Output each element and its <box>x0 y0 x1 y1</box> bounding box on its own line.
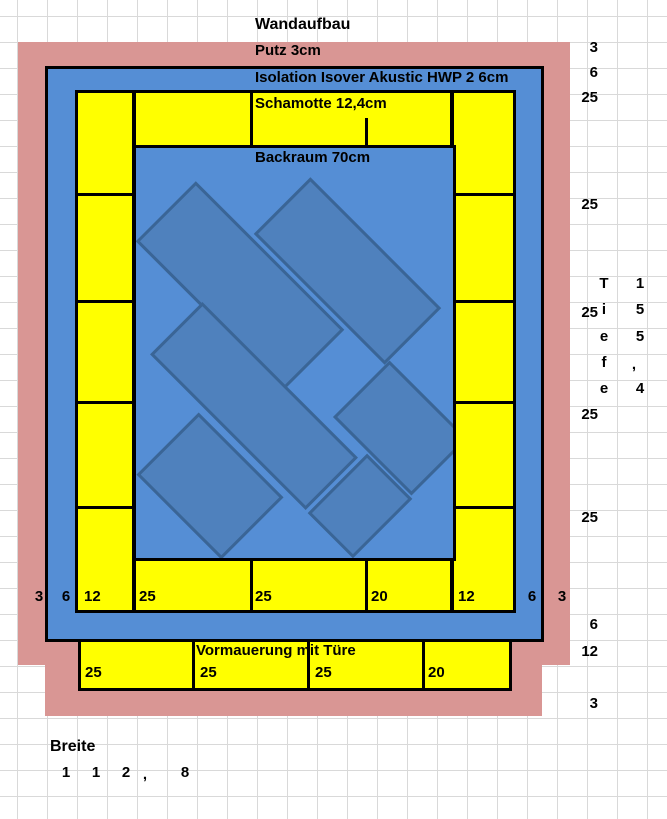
ring-divider <box>365 118 368 145</box>
ring-divider <box>75 506 136 509</box>
ring-divider <box>450 506 516 509</box>
dim-right: 12 <box>570 644 598 661</box>
ring-divider <box>365 558 368 613</box>
dim-right: 3 <box>570 696 598 713</box>
breite-digit: , <box>136 767 154 784</box>
vormauerung-divider <box>422 639 425 691</box>
backraum-chamber[interactable] <box>133 145 456 561</box>
dim-right: 25 <box>570 305 598 322</box>
tiefe-digit: 5 <box>631 329 649 346</box>
dim-vormauerung: 20 <box>428 665 445 682</box>
breite-digit: 1 <box>57 765 75 782</box>
dim-vormauerung: 25 <box>315 665 332 682</box>
ring-divider <box>250 90 253 145</box>
dim-vormauerung: 25 <box>200 665 217 682</box>
dim-bottom: 6 <box>57 589 75 606</box>
ring-divider <box>250 558 253 613</box>
vormauerung-label: Vormauerung mit Türe <box>196 643 356 660</box>
schamotte-label: Schamotte 12,4cm <box>255 96 387 113</box>
dim-bottom: 3 <box>30 589 48 606</box>
isolation-label: Isolation Isover Akustic HWP 2 6cm <box>255 70 508 87</box>
spreadsheet-worksheet[interactable]: Wandaufbau Putz 3cm Isolation Isover Aku… <box>0 0 667 819</box>
dim-right: 25 <box>570 197 598 214</box>
dim-bottom: 20 <box>371 589 388 606</box>
tiefe-letter: T <box>596 276 612 293</box>
dim-right: 3 <box>570 40 598 57</box>
tiefe-digit: 5 <box>631 302 649 319</box>
dim-right: 6 <box>570 617 598 634</box>
dim-right: 25 <box>570 407 598 424</box>
dim-right: 25 <box>570 510 598 527</box>
dim-bottom: 25 <box>139 589 156 606</box>
breite-label: Breite <box>50 738 95 756</box>
putz-label: Putz 3cm <box>255 43 321 60</box>
breite-digit: 2 <box>117 765 135 782</box>
ring-divider <box>450 300 516 303</box>
vormauerung-divider <box>192 639 195 691</box>
ring-divider <box>75 300 136 303</box>
tiefe-letter: i <box>596 302 612 319</box>
ring-divider <box>75 401 136 404</box>
breite-digit: 8 <box>176 765 194 782</box>
dim-bottom: 25 <box>255 589 272 606</box>
tiefe-digit: 4 <box>631 381 649 398</box>
tiefe-letter: e <box>596 329 612 346</box>
diagram-title: Wandaufbau <box>255 16 350 34</box>
tiefe-digit: , <box>625 357 643 374</box>
ring-divider <box>75 193 136 196</box>
dim-bottom: 12 <box>84 589 101 606</box>
dim-right: 6 <box>570 65 598 82</box>
ring-divider <box>450 193 516 196</box>
tiefe-letter: f <box>596 355 612 372</box>
dim-bottom: 3 <box>553 589 571 606</box>
dim-right: 25 <box>570 90 598 107</box>
dim-bottom: 12 <box>458 589 475 606</box>
tiefe-letter: e <box>596 381 612 398</box>
dim-bottom: 6 <box>523 589 541 606</box>
ring-divider <box>450 401 516 404</box>
backraum-label: Backraum 70cm <box>255 150 370 167</box>
tiefe-digit: 1 <box>631 276 649 293</box>
breite-digit: 1 <box>87 765 105 782</box>
dim-vormauerung: 25 <box>85 665 102 682</box>
